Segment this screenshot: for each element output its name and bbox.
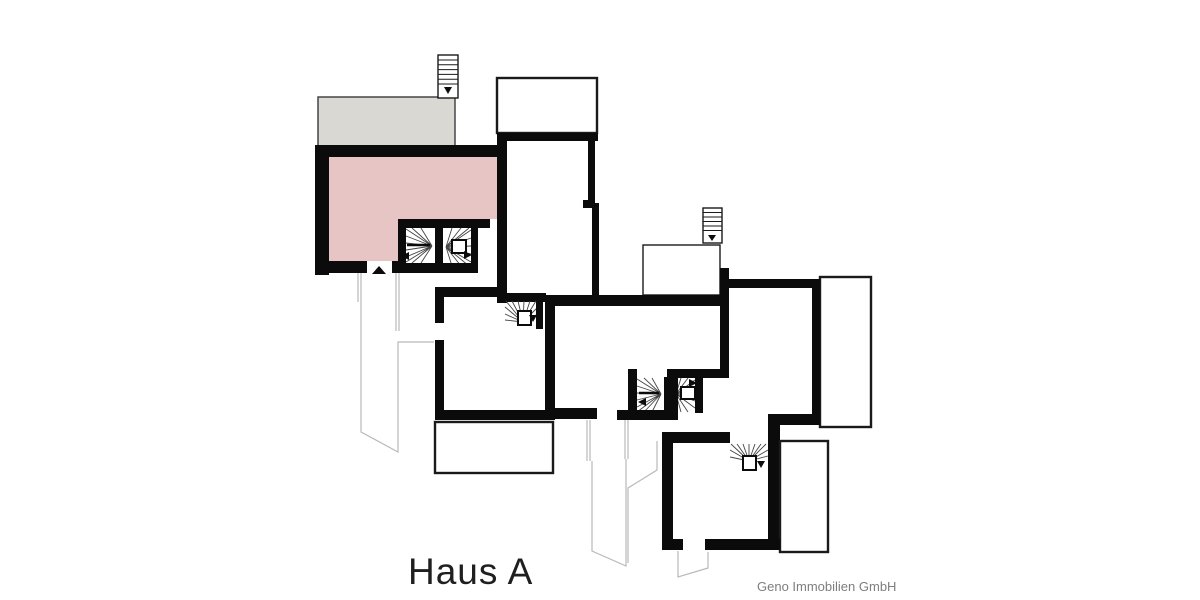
exterior-stair-icon — [703, 208, 722, 243]
floorplan-canvas: Haus A Geno Immobilien GmbH — [0, 0, 1200, 600]
terrace-below — [435, 422, 553, 473]
unit-middle-left — [435, 287, 555, 473]
stair-landing — [518, 311, 531, 325]
unit-central — [550, 208, 729, 420]
stair-landing — [681, 387, 695, 399]
terrace-right — [780, 441, 828, 552]
roof-terrace — [318, 97, 455, 148]
walls-unit-middle-left — [435, 287, 555, 420]
plan-title: Haus A — [408, 551, 533, 592]
unit-top-left — [315, 55, 599, 303]
unit-bottom-right — [662, 432, 828, 552]
upper-room-outline — [643, 245, 720, 295]
exterior-stair-icon — [438, 55, 458, 98]
walls-unit-bottom-right — [662, 432, 780, 550]
balcony-top — [497, 78, 597, 133]
watermark: Geno Immobilien GmbH — [757, 579, 896, 594]
stair-landing — [452, 240, 466, 253]
floorplan-svg: Haus A Geno Immobilien GmbH — [0, 0, 1200, 600]
direction-arrows — [757, 461, 765, 468]
stairwell-icon — [730, 444, 768, 470]
balcony-right — [820, 277, 871, 427]
stair-landing — [743, 456, 756, 470]
